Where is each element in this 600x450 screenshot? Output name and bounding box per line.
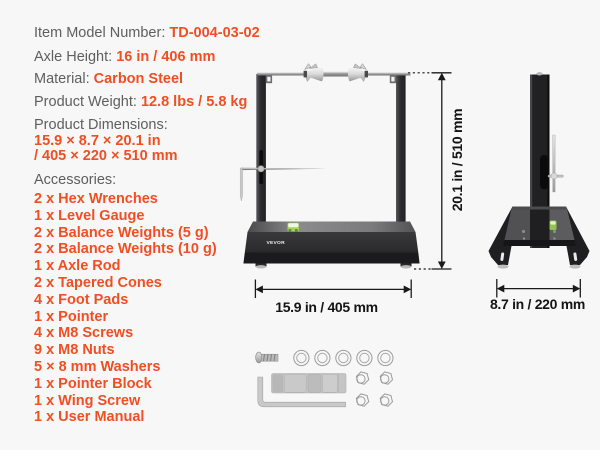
svg-text:15.9 in / 405 mm: 15.9 in / 405 mm	[275, 299, 378, 315]
svg-text:20.1 in / 510 mm: 20.1 in / 510 mm	[449, 109, 465, 212]
svg-text:VEVOR: VEVOR	[267, 240, 286, 246]
svg-text:8.7 in / 220 mm: 8.7 in / 220 mm	[490, 296, 585, 312]
